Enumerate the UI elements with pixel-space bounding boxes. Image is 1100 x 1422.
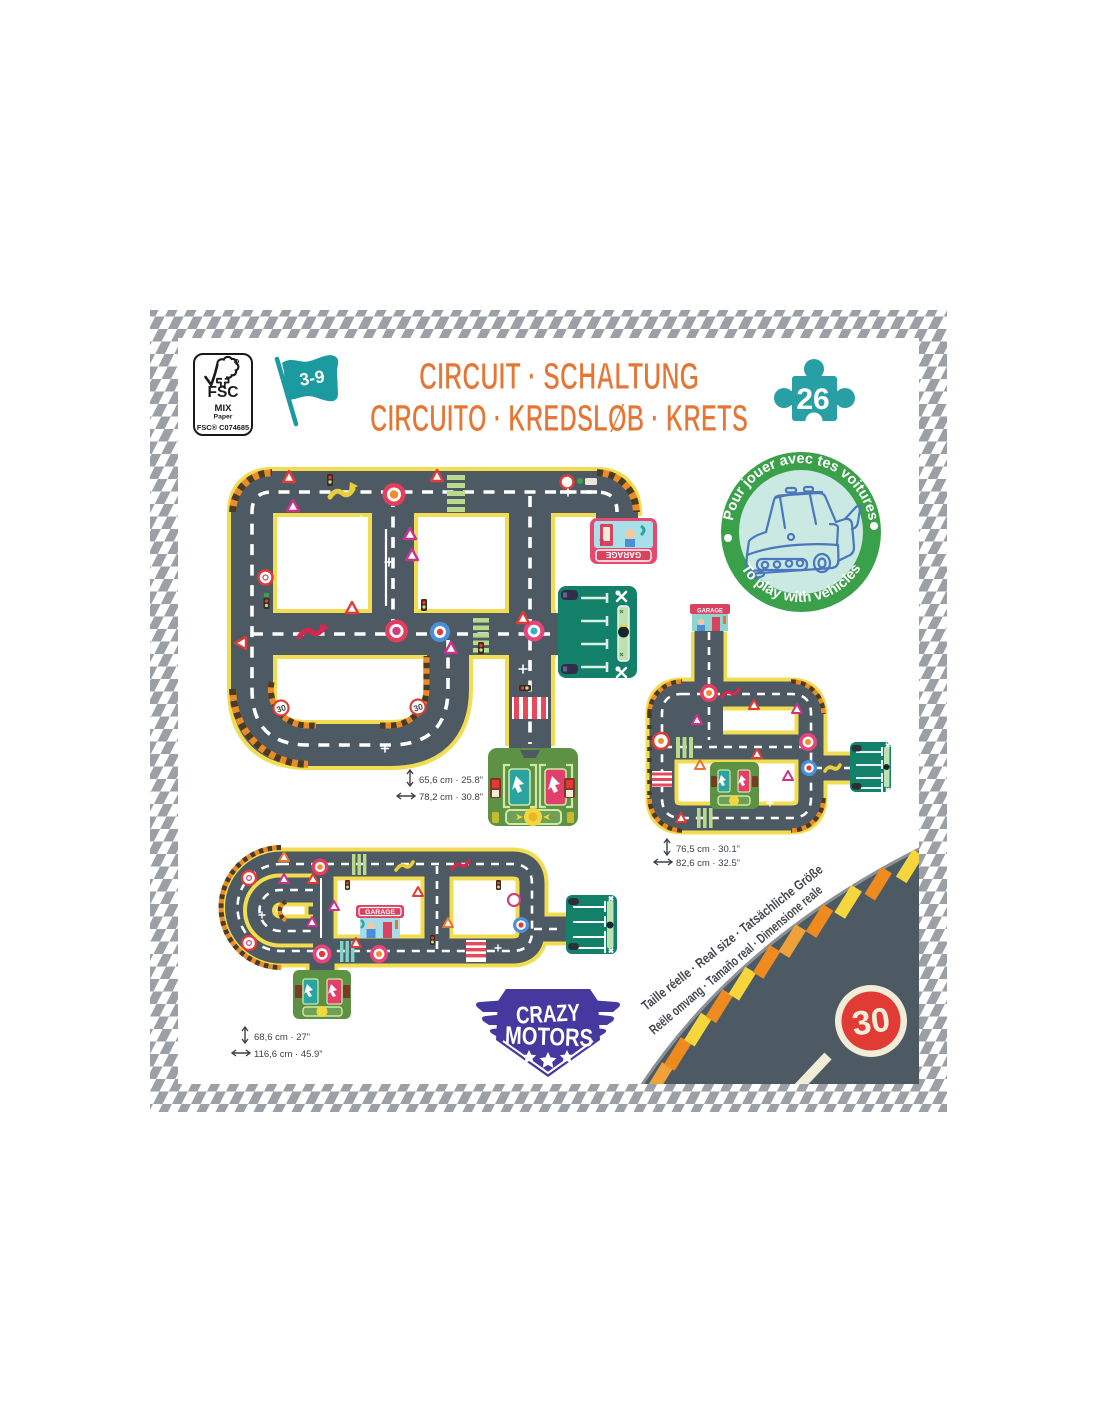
svg-text:82,6 cm · 32.5”: 82,6 cm · 32.5” bbox=[676, 858, 740, 869]
svg-text:116,6 cm · 45.9”: 116,6 cm · 45.9” bbox=[254, 1049, 322, 1060]
svg-text:30: 30 bbox=[850, 1001, 893, 1044]
svg-text:GARAGE: GARAGE bbox=[605, 550, 641, 559]
svg-text:Paper: Paper bbox=[214, 414, 233, 421]
svg-text:65,6 cm · 25.8”: 65,6 cm · 25.8” bbox=[419, 775, 483, 786]
svg-text:MIX: MIX bbox=[215, 403, 233, 414]
svg-text:CIRCUIT · SCHALTUNG: CIRCUIT · SCHALTUNG bbox=[419, 356, 699, 398]
svg-text:7: 7 bbox=[599, 538, 604, 548]
svg-text:68,6 cm · 27”: 68,6 cm · 27” bbox=[254, 1032, 310, 1043]
svg-text:CIRCUITO · KREDSLØB · KRETS: CIRCUITO · KREDSLØB · KRETS bbox=[370, 398, 748, 440]
svg-text:FSC® C074685: FSC® C074685 bbox=[197, 423, 249, 432]
svg-text:76,5 cm · 30.1”: 76,5 cm · 30.1” bbox=[676, 844, 740, 855]
svg-text:GARAGE: GARAGE bbox=[697, 609, 723, 615]
svg-text:78,2 cm · 30.8”: 78,2 cm · 30.8” bbox=[419, 792, 483, 803]
svg-text:3-9: 3-9 bbox=[298, 366, 326, 390]
svg-text:MOTORS: MOTORS bbox=[505, 1022, 594, 1053]
svg-text:GARAGE: GARAGE bbox=[365, 909, 396, 916]
svg-text:FSC: FSC bbox=[208, 384, 239, 401]
svg-text:26: 26 bbox=[796, 383, 829, 416]
